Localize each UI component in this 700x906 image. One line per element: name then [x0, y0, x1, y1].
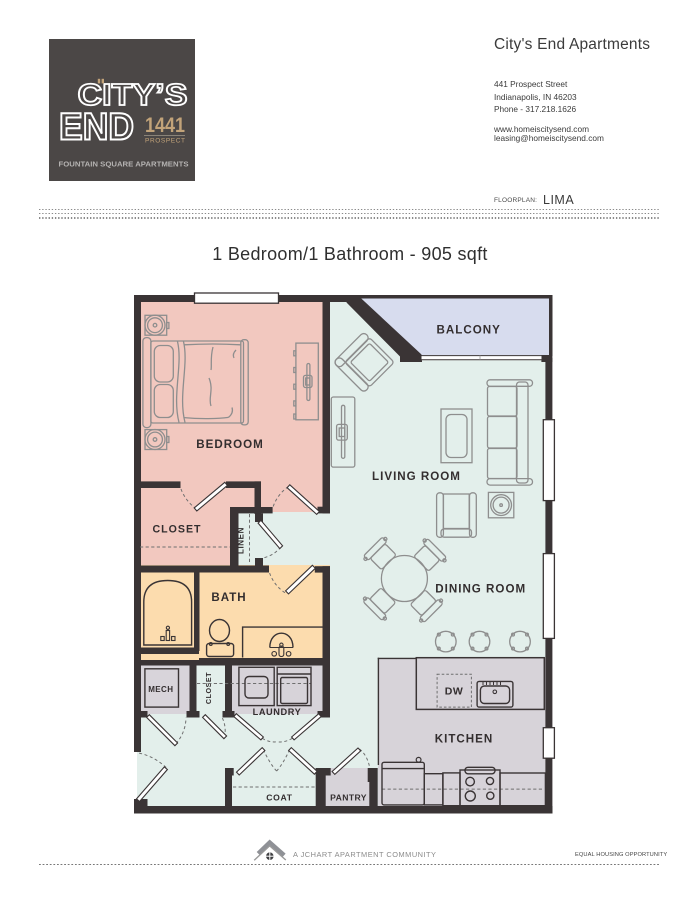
- svg-text:COAT: COAT: [266, 793, 293, 803]
- svg-text:LIVING ROOM: LIVING ROOM: [372, 470, 461, 483]
- svg-text:DW: DW: [445, 686, 464, 698]
- svg-text:BATH: BATH: [211, 591, 246, 604]
- svg-text:PANTRY: PANTRY: [330, 793, 367, 803]
- svg-text:BEDROOM: BEDROOM: [196, 438, 264, 451]
- svg-text:MECH: MECH: [148, 685, 173, 694]
- svg-text:CLOSET: CLOSET: [204, 672, 213, 704]
- svg-text:DINING ROOM: DINING ROOM: [435, 583, 526, 596]
- svg-text:LAUNDRY: LAUNDRY: [253, 707, 302, 717]
- svg-text:CLOSET: CLOSET: [153, 524, 202, 536]
- svg-text:LINEN: LINEN: [237, 527, 246, 554]
- svg-text:BALCONY: BALCONY: [437, 324, 501, 337]
- svg-text:KITCHEN: KITCHEN: [435, 733, 494, 746]
